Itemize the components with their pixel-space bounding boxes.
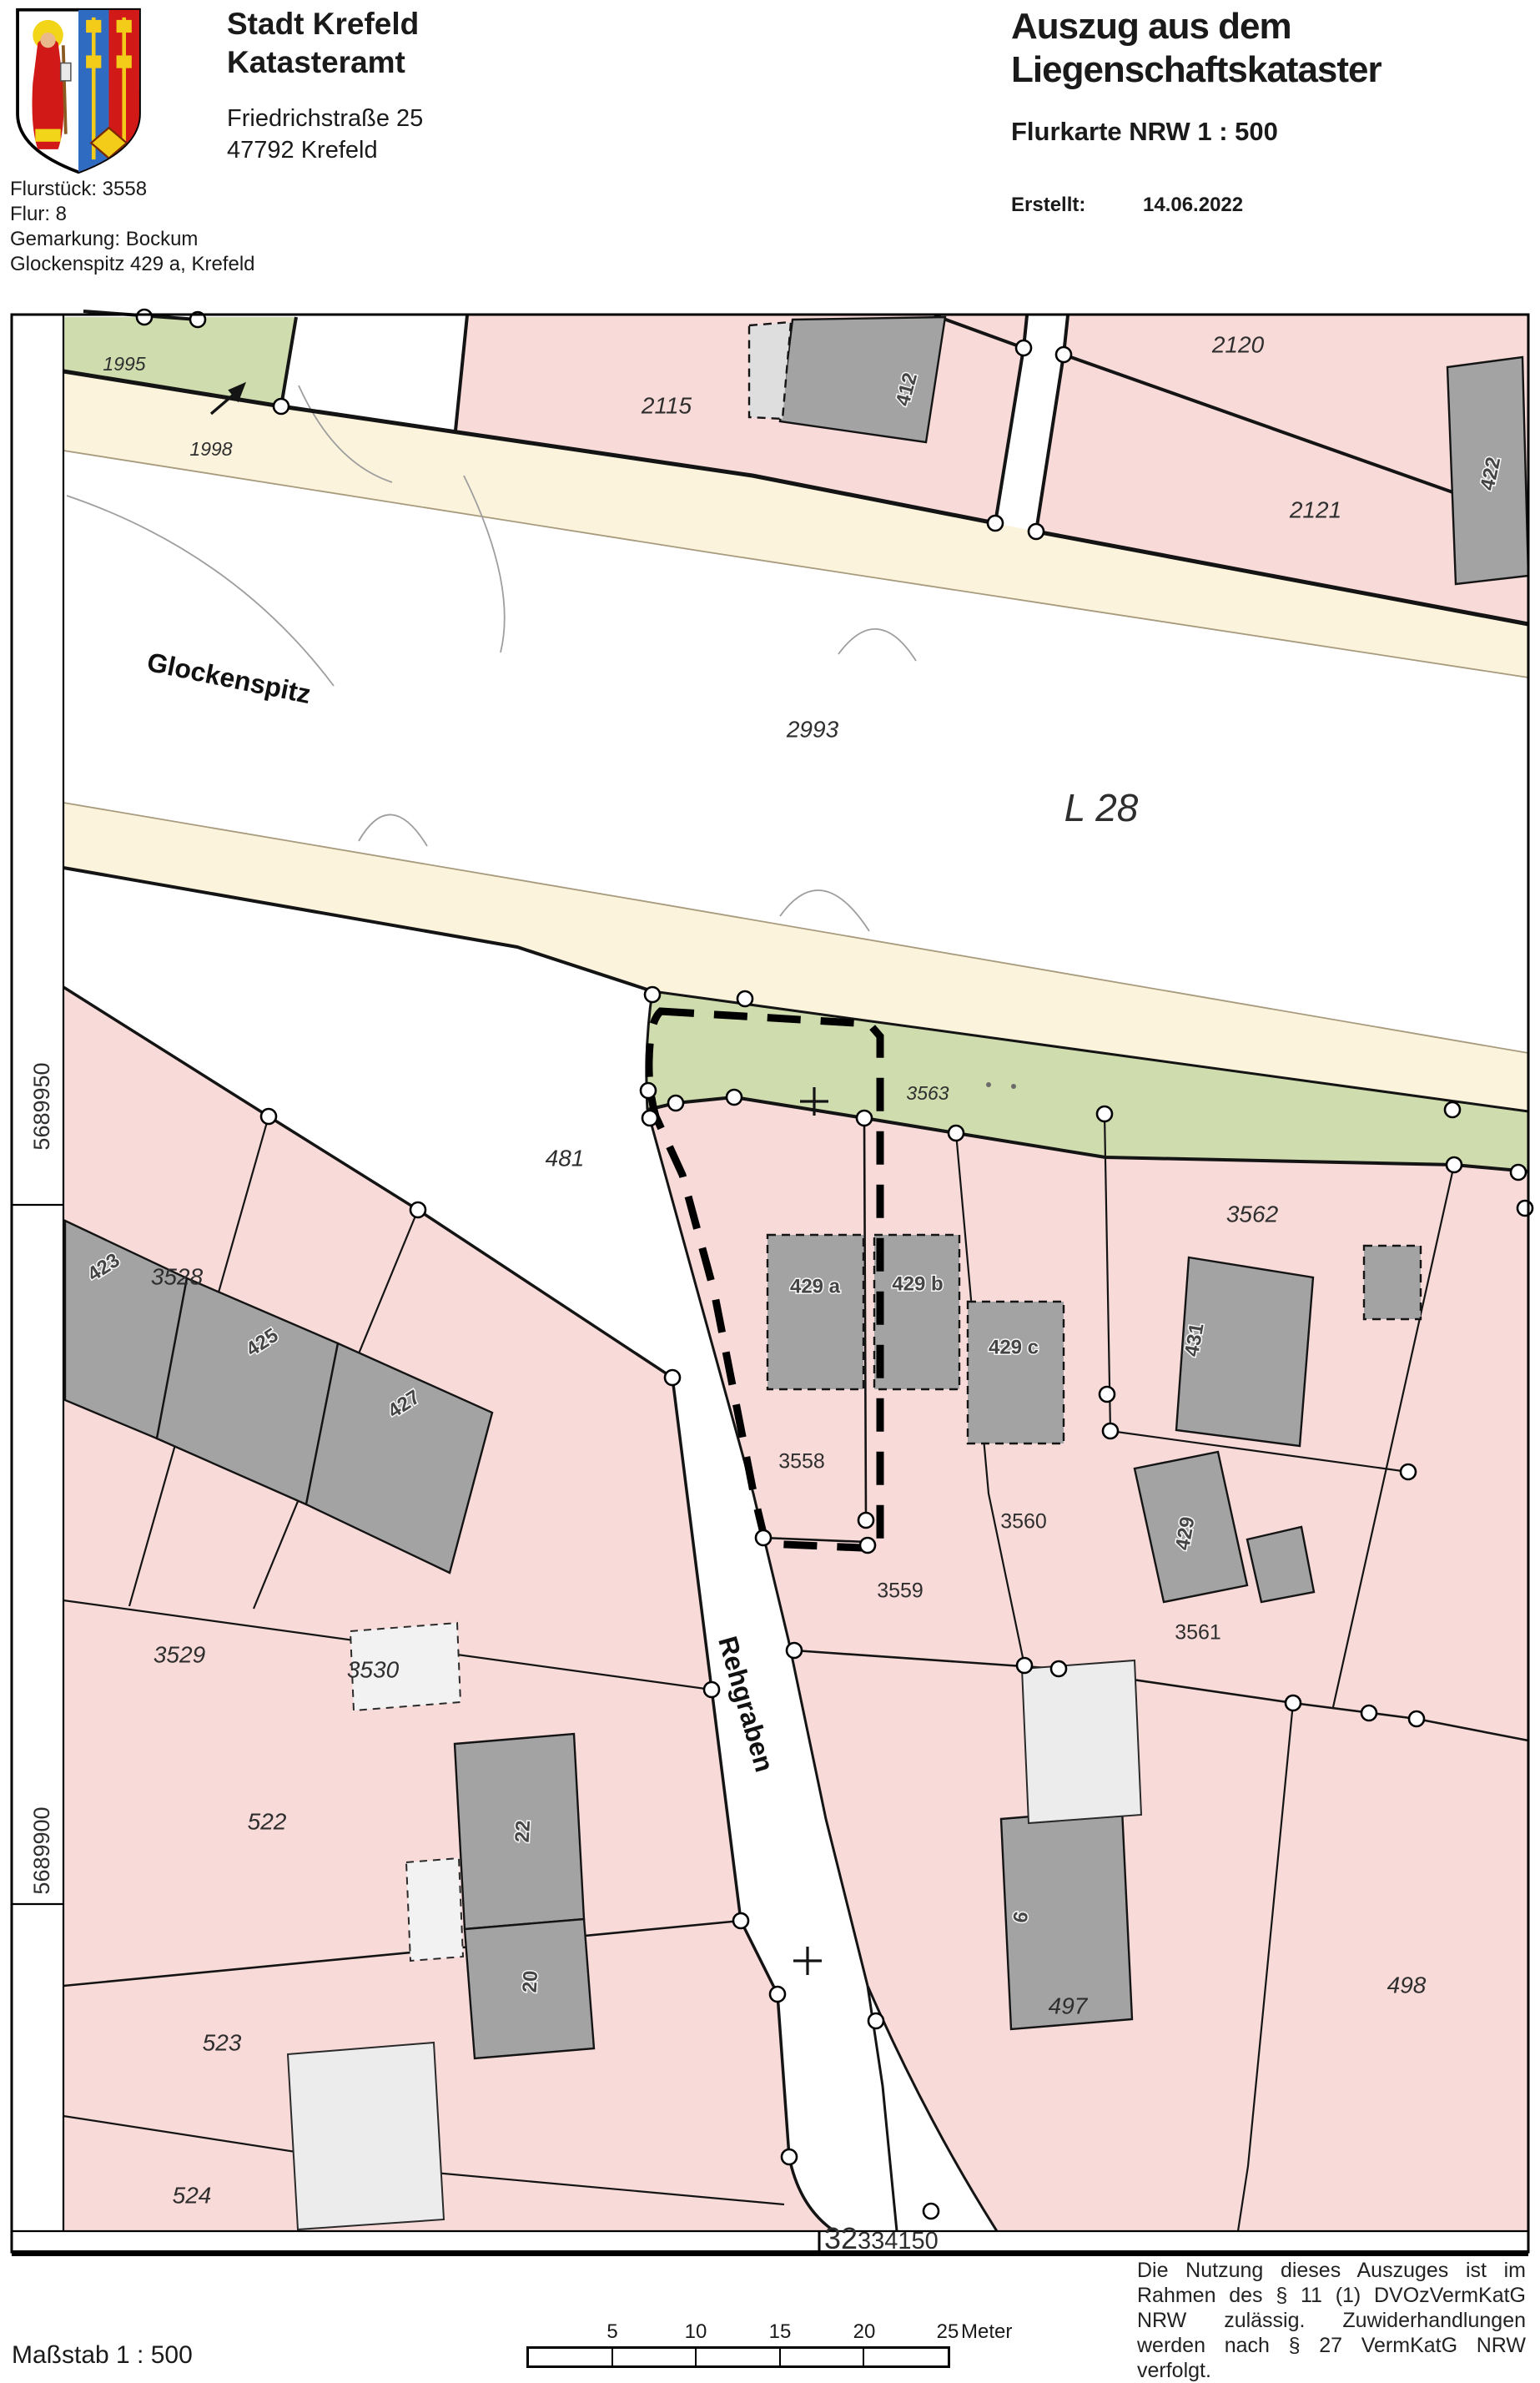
boundary-point-icon bbox=[1447, 1157, 1462, 1172]
scale-bar-unit: Meter bbox=[961, 2320, 1012, 2344]
boundary-point-icon bbox=[868, 2013, 883, 2028]
parcel-number-label-498: 498 bbox=[1387, 1972, 1427, 1998]
scale-bar-tick bbox=[695, 2349, 697, 2365]
boundary-point-icon bbox=[137, 310, 152, 325]
parcel-number-label-1998: 1998 bbox=[189, 438, 232, 460]
garage-dashed-2 bbox=[406, 1858, 463, 1961]
boundary-point-icon bbox=[858, 1513, 873, 1528]
street-name-label-Glockenspitz: Glockenspitz bbox=[144, 647, 313, 709]
boundary-point-icon bbox=[923, 2204, 939, 2219]
grid-easting-zone: 32 bbox=[824, 2221, 858, 2255]
boundary-point-icon bbox=[1051, 1661, 1066, 1676]
scale-bar-label-5: 5 bbox=[606, 2320, 617, 2344]
boundary-point-icon bbox=[1056, 347, 1071, 362]
parcel-number-label-3563: 3563 bbox=[906, 1082, 949, 1104]
parcel-number-label-497: 497 bbox=[1049, 1993, 1089, 2018]
scale-bar-label-15: 15 bbox=[769, 2320, 792, 2344]
building-429c bbox=[968, 1302, 1064, 1443]
parcel-number-label-3558: 3558 bbox=[778, 1450, 825, 1474]
parcel-number-label-523: 523 bbox=[203, 2029, 242, 2055]
boundary-point-icon bbox=[727, 1090, 742, 1105]
outbuilding-north-of-6 bbox=[1022, 1660, 1141, 1823]
boundary-point-icon bbox=[949, 1126, 964, 1141]
boundary-point-icon bbox=[733, 1913, 748, 1928]
parcel-number-label-3528: 3528 bbox=[151, 1263, 204, 1289]
parcel-number-label-3559: 3559 bbox=[877, 1579, 923, 1603]
street-name-label-Rehgraben: Rehgraben bbox=[712, 1633, 780, 1776]
parcel-number-label-1995: 1995 bbox=[103, 353, 145, 375]
boundary-point-icon bbox=[737, 991, 752, 1006]
outbuilding-dashed-east bbox=[1364, 1246, 1421, 1319]
boundary-point-icon bbox=[1100, 1387, 1115, 1402]
grid-northing-label-5689950: 5689950 bbox=[29, 1062, 54, 1150]
parcel-number-label-3529: 3529 bbox=[153, 1641, 205, 1667]
boundary-point-icon bbox=[1361, 1705, 1376, 1720]
boundary-point-icon bbox=[988, 516, 1003, 531]
grid-northing-label-5689900: 5689900 bbox=[29, 1806, 54, 1894]
boundary-point-icon bbox=[641, 1083, 656, 1098]
scale-bar-tick bbox=[779, 2349, 781, 2365]
scale-bar-label-20: 20 bbox=[853, 2320, 876, 2344]
boundary-point-icon bbox=[1103, 1423, 1118, 1438]
boundary-point-icon bbox=[1517, 1201, 1532, 1216]
cadastral-map-canvas: 32 334150 19951998211541221202121422Gloc… bbox=[0, 0, 1540, 2383]
scale-bar-tick bbox=[863, 2349, 864, 2365]
parcel-number-label-2120: 2120 bbox=[1211, 331, 1265, 357]
boundary-point-icon bbox=[787, 1643, 802, 1658]
scale-bar: 5 10 15 20 25 Meter bbox=[526, 2346, 950, 2368]
boundary-point-icon bbox=[1401, 1464, 1416, 1479]
boundary-point-icon bbox=[668, 1096, 683, 1111]
building-429b bbox=[874, 1235, 959, 1389]
building-number-label-429-c: 429 c bbox=[989, 1336, 1039, 1358]
parcel-number-label-524: 524 bbox=[173, 2182, 212, 2208]
boundary-point-icon bbox=[857, 1111, 872, 1126]
boundary-point-icon bbox=[860, 1538, 875, 1553]
boundary-point-icon bbox=[261, 1109, 276, 1124]
scale-bar-label-25: 25 bbox=[937, 2320, 959, 2344]
parcel-number-label-3530: 3530 bbox=[347, 1656, 400, 1682]
cadastral-extract-page: { "header": { "org_line1": "Stadt Krefel… bbox=[0, 0, 1540, 2383]
boundary-point-icon bbox=[770, 1987, 785, 2002]
boundary-point-icon bbox=[1445, 1102, 1460, 1117]
outbuilding-southwest bbox=[288, 2043, 444, 2229]
boundary-point-icon bbox=[1511, 1165, 1526, 1180]
boundary-point-icon bbox=[1286, 1695, 1301, 1710]
building-429a bbox=[767, 1235, 863, 1389]
parcel-number-label-3561: 3561 bbox=[1175, 1621, 1221, 1645]
boundary-point-icon bbox=[1017, 1658, 1032, 1673]
boundary-point-icon bbox=[1097, 1106, 1112, 1121]
boundary-point-icon bbox=[645, 987, 660, 1002]
boundary-point-icon bbox=[782, 2149, 797, 2164]
scale-text: Maßstab 1 : 500 bbox=[12, 2341, 193, 2370]
parcel-number-label-481: 481 bbox=[546, 1145, 585, 1171]
parcel-number-label-2993: 2993 bbox=[786, 716, 839, 742]
building-number-label-22: 22 bbox=[511, 1820, 535, 1843]
parcel-number-label-522: 522 bbox=[248, 1808, 287, 1834]
boundary-point-icon bbox=[410, 1202, 425, 1217]
grid-easting-value: 334150 bbox=[858, 2228, 939, 2255]
boundary-point-icon bbox=[1016, 340, 1031, 355]
legal-notice: Die Nutzung dieses Auszuges ist im Rahme… bbox=[1137, 2258, 1526, 2383]
scale-bar-label-10: 10 bbox=[685, 2320, 707, 2344]
boundary-point-icon bbox=[704, 1682, 719, 1697]
scale-bar-tick bbox=[611, 2349, 613, 2365]
boundary-point-icon bbox=[274, 399, 289, 414]
building-number-label-20: 20 bbox=[519, 1970, 542, 1993]
parcel-number-label-3560: 3560 bbox=[1000, 1510, 1047, 1534]
parcel-number-label-2115: 2115 bbox=[641, 392, 692, 418]
boundary-point-icon bbox=[756, 1530, 771, 1545]
building-number-label-429-a: 429 a bbox=[790, 1275, 841, 1297]
boundary-point-icon bbox=[1029, 524, 1044, 539]
building-number-label-429-b: 429 b bbox=[892, 1272, 943, 1295]
boundary-point-icon bbox=[1409, 1711, 1424, 1726]
boundary-point-icon bbox=[642, 1111, 657, 1126]
boundary-point-icon bbox=[665, 1370, 680, 1385]
parcel-number-label-3562: 3562 bbox=[1226, 1201, 1279, 1227]
parcel-number-label-2121: 2121 bbox=[1289, 496, 1341, 522]
road-designation-label-L-28: L 28 bbox=[1064, 786, 1139, 829]
